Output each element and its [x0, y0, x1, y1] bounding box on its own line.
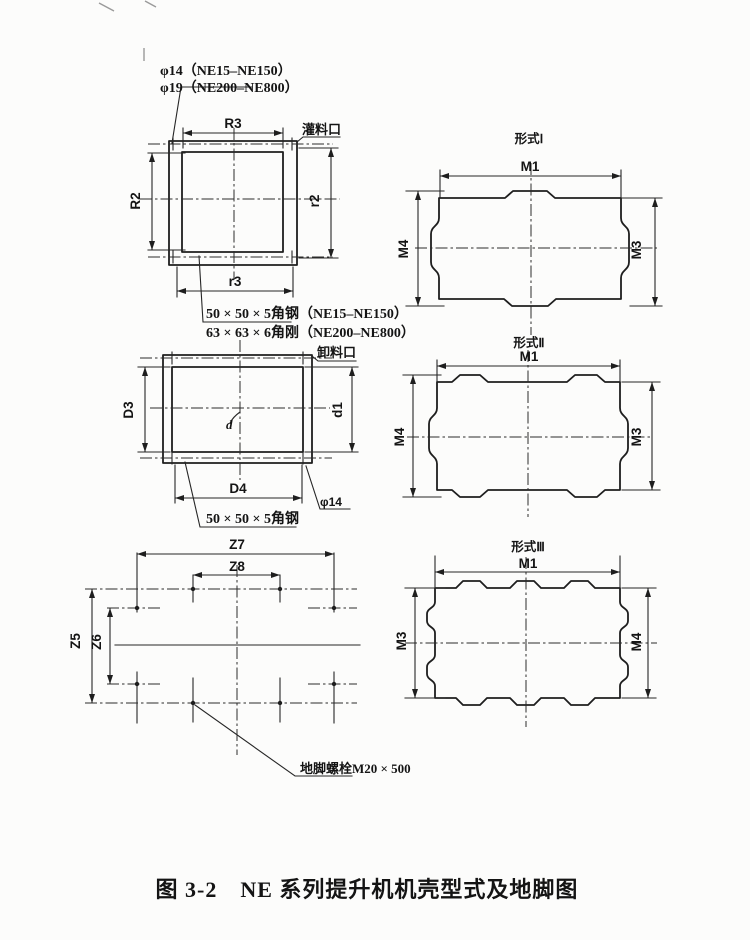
dim-label-m3: M3 [629, 240, 644, 259]
dim-label-m1: M1 [521, 159, 540, 174]
flange-outline [169, 141, 297, 265]
figure-caption: 图 3-2 NE 系列提升机机壳型式及地脚图 [156, 877, 579, 902]
dim-label-m3: M3 [394, 631, 409, 650]
angle-steel-note-line2: 63 × 63 × 6角刚（NE200–NE800） [206, 324, 415, 341]
angle-steel-note: 50 × 50 × 5角钢 [206, 510, 299, 527]
anchor-bolt-note: 地脚螺栓M20 × 500 [300, 761, 411, 776]
filling-port-label: 灌料口 [302, 122, 341, 137]
dim-label-r2-right: r2 [307, 195, 322, 208]
dim-label-m4: M4 [629, 632, 644, 651]
dim-label-m1: M1 [519, 556, 538, 571]
discharge-port-view: 卸料口 D3 d1 D4 φ14 d 50 × 50 × 5角钢 [121, 340, 358, 527]
bolt-hole-note-line1: φ14（NE15–NE150） [160, 63, 292, 79]
dim-label-d1-right: d1 [330, 402, 345, 418]
anchor-bolt [332, 606, 336, 610]
dimension-arrowheads [142, 367, 355, 501]
housing-type-2: 形式Ⅱ M1 M4 M3 [392, 335, 660, 517]
dimension-lines [405, 556, 656, 698]
flange-outline [163, 355, 312, 463]
dim-label-m4: M4 [392, 427, 407, 446]
dimension-arrowheads [410, 363, 655, 497]
dim-label-z7: Z7 [229, 537, 245, 552]
housing-type-1: 形式Ⅰ M1 M4 M3 [396, 131, 662, 335]
dim-label-z8: Z8 [229, 559, 245, 574]
type-1-title: 形式Ⅰ [515, 131, 544, 146]
figure-page: φ14（NE15–NE150） φ19（NE200–NE800） R3 灌料口 … [0, 0, 750, 940]
discharge-port-label: 卸料口 [317, 345, 356, 360]
bolt-column-and-dimension-lines [92, 553, 360, 776]
dim-label-m1: M1 [520, 349, 539, 364]
technical-drawing-canvas: φ14（NE15–NE150） φ19（NE200–NE800） R3 灌料口 … [0, 0, 750, 940]
anchor-bolt [135, 682, 139, 686]
scan-artifacts [99, 1, 156, 61]
anchor-bolt [278, 587, 282, 591]
dim-label-z6: Z6 [89, 634, 104, 650]
bolt-hole-diameter-label: φ14 [320, 495, 342, 509]
dimension-arrowheads [89, 551, 334, 703]
filling-port-view: φ14（NE15–NE150） φ19（NE200–NE800） R3 灌料口 … [128, 63, 415, 341]
anchor-bolt [191, 701, 195, 705]
dim-label-d4-bottom: D4 [229, 481, 247, 496]
anchor-bolt [135, 606, 139, 610]
type-2-title: 形式Ⅱ [513, 335, 544, 350]
center-lines [407, 350, 653, 517]
anchor-bolt [191, 587, 195, 591]
anchor-bolt [332, 682, 336, 686]
center-mark: d [226, 417, 233, 432]
anchor-bolt-dots [135, 587, 336, 705]
dim-label-m3: M3 [629, 427, 644, 446]
dim-label-r3-top: R3 [224, 116, 242, 131]
housing-type-3: 形式Ⅲ M1 M3 M4 [394, 539, 657, 727]
dimension-lines [403, 360, 660, 497]
dim-label-z5: Z5 [68, 633, 83, 649]
dim-label-r2-left: R2 [128, 192, 143, 209]
anchor-bolt [278, 701, 282, 705]
dim-label-d3-left: D3 [121, 401, 136, 419]
dim-label-r3-bottom: r3 [229, 274, 242, 289]
angle-steel-note-line1: 50 × 50 × 5角钢（NE15–NE150） [206, 305, 408, 322]
bolt-row-center-lines [85, 565, 357, 755]
foundation-plan: Z7 Z8 Z5 Z6 地脚螺栓M20 × 500 [68, 537, 411, 776]
dim-label-m4: M4 [396, 239, 411, 258]
bolt-hole-note-line2: φ19（NE200–NE800） [160, 80, 299, 96]
type-3-title: 形式Ⅲ [511, 539, 545, 554]
